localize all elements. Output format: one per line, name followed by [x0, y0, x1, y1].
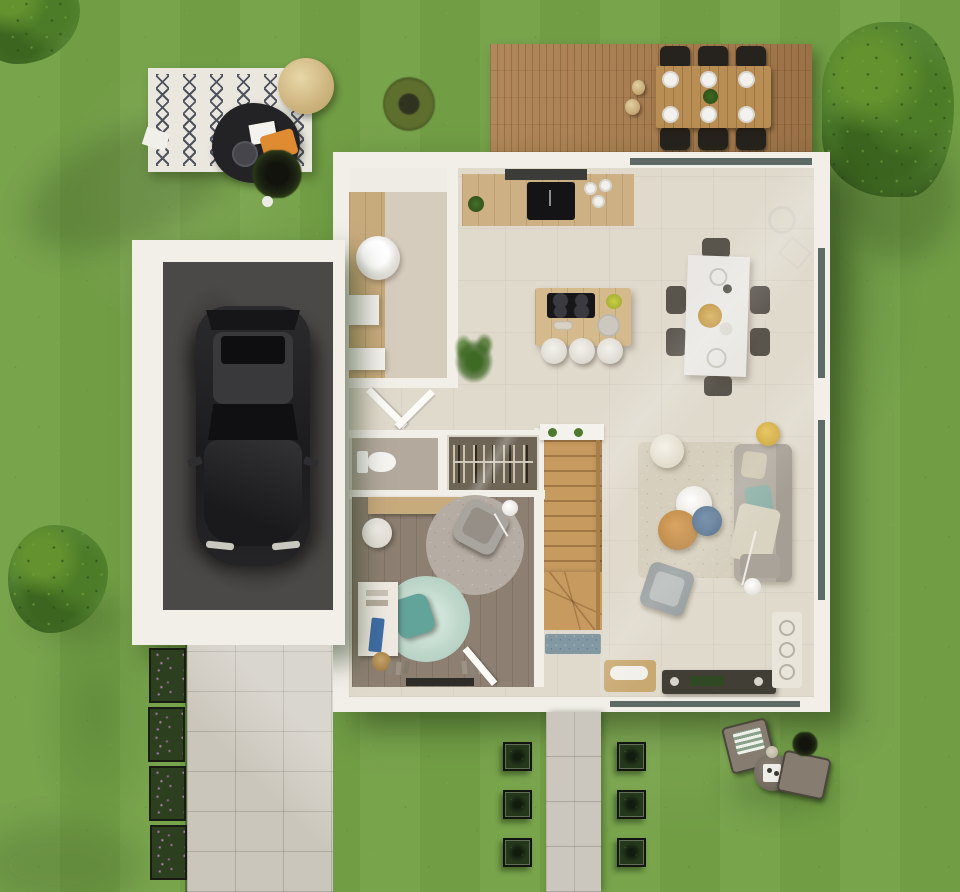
window-right-wall: [818, 248, 825, 378]
indoor-palm-plant-icon: [448, 325, 500, 391]
desk-white: [358, 582, 398, 656]
shoe: [396, 662, 402, 675]
laundry-unit: [349, 295, 379, 325]
pantry-cabinet: [349, 168, 449, 192]
console-decor-green: [690, 676, 724, 686]
reading-lamp-icon: [502, 500, 518, 516]
dining-chair: [750, 328, 770, 356]
sofa-cushion-beige: [740, 450, 767, 479]
shrub-planter: [503, 790, 532, 819]
entry-doormat: [545, 634, 601, 654]
bench-cushion: [610, 666, 648, 680]
side-table-yellow: [756, 422, 780, 446]
tree-foliage-texture: [822, 22, 954, 197]
garden-plot-render: [0, 0, 960, 892]
bar-stool: [541, 338, 567, 364]
black-potted-plant-icon: [252, 150, 302, 198]
rug-zigzag-band: [183, 74, 196, 166]
car-headlight-right: [272, 541, 301, 551]
shrub-planter: [617, 790, 646, 819]
patio-plant-icon: [792, 732, 818, 756]
wc-room: [352, 438, 442, 492]
serving-plate: [597, 314, 620, 337]
laundry-unit: [349, 348, 385, 370]
shelf-vase: [779, 620, 795, 636]
pouf-beige: [278, 58, 334, 114]
desk-books: [366, 600, 388, 606]
deck-chair: [660, 127, 690, 150]
ornamental-grass-icon: [383, 77, 435, 131]
decor-item: [723, 284, 732, 293]
decor-ball: [262, 196, 273, 207]
desk-books: [366, 590, 388, 596]
plate: [700, 71, 717, 88]
shrub-planter: [617, 742, 646, 771]
shrub-planter: [503, 838, 532, 867]
kitchen-sink: [527, 182, 575, 220]
plate: [662, 71, 679, 88]
toilet-bowl: [368, 452, 396, 472]
yoga-mat: [368, 617, 384, 652]
dish: [599, 179, 612, 192]
plate: [662, 106, 679, 123]
plate: [738, 106, 755, 123]
small-dish: [553, 321, 573, 330]
fruit-bowl: [698, 303, 723, 328]
stair-stringer: [596, 440, 600, 630]
wall-pantry-bottom: [349, 378, 458, 388]
deck-chair: [698, 127, 728, 150]
shrub-planter: [617, 838, 646, 867]
dining-table: [684, 255, 750, 377]
console-decor: [754, 677, 763, 686]
shelf-vase: [779, 664, 795, 680]
stairs-top-shelf: [540, 424, 604, 440]
flower-planter: [148, 707, 185, 762]
coffee-table-blue: [692, 506, 722, 536]
window-bottom-wall: [610, 701, 800, 707]
cooktop: [547, 293, 595, 318]
door-threshold: [406, 678, 474, 686]
wall-bedroom-right: [534, 497, 544, 687]
car-hood: [204, 440, 302, 546]
plate: [738, 71, 755, 88]
outdoor-dining-table: [655, 66, 771, 128]
car-top-view: [196, 306, 310, 566]
patio-towel: [733, 727, 765, 755]
tree-top-left-icon: [0, 0, 80, 64]
tableware: [706, 348, 727, 369]
window-top-wall: [630, 158, 812, 165]
bar-stool: [597, 338, 623, 364]
shelf-vase: [779, 642, 795, 658]
washing-machine-top: [356, 236, 400, 280]
tree-top-right-icon: [822, 22, 954, 197]
staircase-straight-flight: [544, 440, 602, 572]
dining-chair: [666, 328, 686, 356]
shelf-plant-icon: [574, 428, 583, 437]
toilet-tank: [357, 451, 368, 473]
deck-vase: [632, 80, 645, 95]
dining-chair: [750, 286, 770, 314]
wall-clock-icon: [768, 206, 796, 234]
armchair-seat: [648, 570, 686, 608]
sofa: [734, 444, 792, 582]
table-centerpiece-plant: [703, 89, 718, 104]
tableware: [709, 268, 728, 287]
tv-console: [662, 670, 776, 694]
dish: [592, 195, 605, 208]
flower-planter: [149, 766, 186, 821]
car-rear-window: [206, 310, 300, 330]
coat-closet: [447, 435, 539, 492]
car-windshield: [208, 404, 298, 440]
floor-lamp-icon: [744, 578, 761, 595]
wall-wc-closet: [438, 438, 447, 492]
plate: [700, 106, 717, 123]
deck-chair: [736, 127, 766, 150]
flower-planter: [150, 825, 187, 880]
display-shelf: [772, 612, 802, 688]
patio-ball-pouf: [766, 746, 778, 758]
bar-stool: [569, 338, 595, 364]
kitchen-plant-icon: [468, 196, 484, 212]
dining-chair: [704, 376, 732, 396]
window-right-wall: [818, 420, 825, 600]
shelf-plant-icon: [548, 428, 557, 437]
closet-glass: [449, 437, 537, 490]
corner-shade-bottom-left: [0, 820, 140, 892]
car-sunroof: [221, 336, 285, 364]
salad-bowl: [606, 294, 622, 309]
staircase-winder-steps: [544, 572, 602, 630]
range-hood: [505, 169, 587, 180]
cream-pouf: [650, 434, 684, 468]
dish: [584, 182, 597, 195]
cup: [719, 322, 732, 335]
rug-zigzag-band: [156, 74, 169, 166]
tray-item: [767, 768, 772, 773]
console-decor: [670, 677, 679, 686]
deck-vase: [625, 99, 640, 115]
shrub-planter: [503, 742, 532, 771]
faucet: [549, 190, 551, 206]
flower-planter: [149, 648, 186, 703]
dining-chair: [666, 286, 686, 314]
front-walkway: [546, 712, 601, 892]
white-pouf: [362, 518, 392, 548]
driveway: [187, 645, 333, 892]
lounge-cushion: [460, 505, 501, 546]
tree-foliage-texture: [0, 0, 80, 64]
entry-bench: [604, 660, 656, 692]
